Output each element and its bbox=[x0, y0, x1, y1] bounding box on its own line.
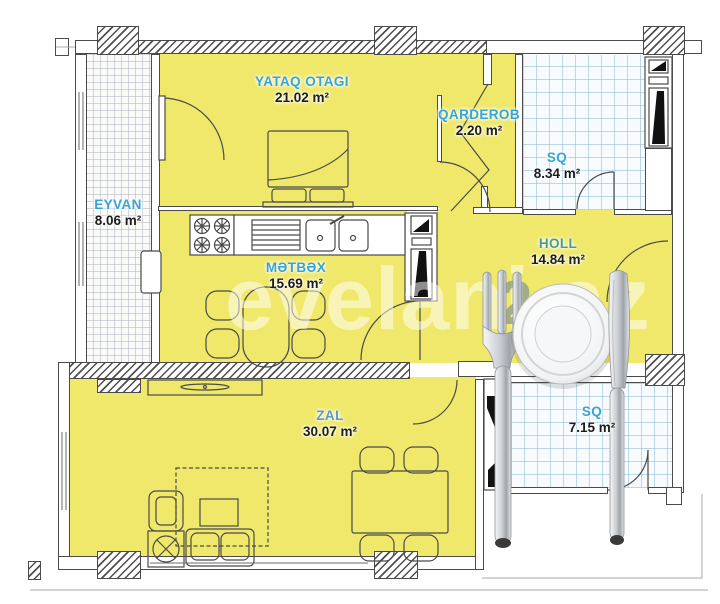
room-name: SQ bbox=[569, 404, 616, 420]
cutlery-decor bbox=[0, 0, 720, 604]
label-sq-lower: SQ 7.15 m² bbox=[569, 404, 616, 436]
room-area: 8.34 m² bbox=[534, 166, 581, 182]
room-name: ZAL bbox=[303, 408, 357, 424]
label-holl: HOLL 14.84 m² bbox=[531, 236, 585, 268]
label-qarderob: QARDEROB 2.20 m² bbox=[438, 107, 520, 139]
room-area: 15.69 m² bbox=[266, 276, 326, 292]
room-area: 30.07 m² bbox=[303, 424, 357, 440]
room-name: SQ bbox=[534, 150, 581, 166]
plate-icon bbox=[511, 284, 615, 389]
room-area: 8.06 m² bbox=[94, 213, 142, 229]
label-sq-upper: SQ 8.34 m² bbox=[534, 150, 581, 182]
room-area: 14.84 m² bbox=[531, 252, 585, 268]
room-name: EYVAN bbox=[94, 197, 142, 213]
label-zal: ZAL 30.07 m² bbox=[303, 408, 357, 440]
label-yataq-otagi: YATAQ OTAGI 21.02 m² bbox=[255, 74, 349, 106]
room-name: HOLL bbox=[531, 236, 585, 252]
room-area: 2.20 m² bbox=[438, 123, 520, 139]
room-name: YATAQ OTAGI bbox=[255, 74, 349, 90]
fork-icon bbox=[483, 270, 521, 548]
room-name: QARDEROB bbox=[438, 107, 520, 123]
label-eyvan: EYVAN 8.06 m² bbox=[94, 197, 142, 229]
floor-plan: evelani.az 2 bbox=[0, 0, 720, 604]
room-area: 21.02 m² bbox=[255, 90, 349, 106]
label-metbex: MƏTBƏX 15.69 m² bbox=[266, 260, 326, 292]
room-area: 7.15 m² bbox=[569, 420, 616, 436]
room-name: MƏTBƏX bbox=[266, 260, 326, 276]
